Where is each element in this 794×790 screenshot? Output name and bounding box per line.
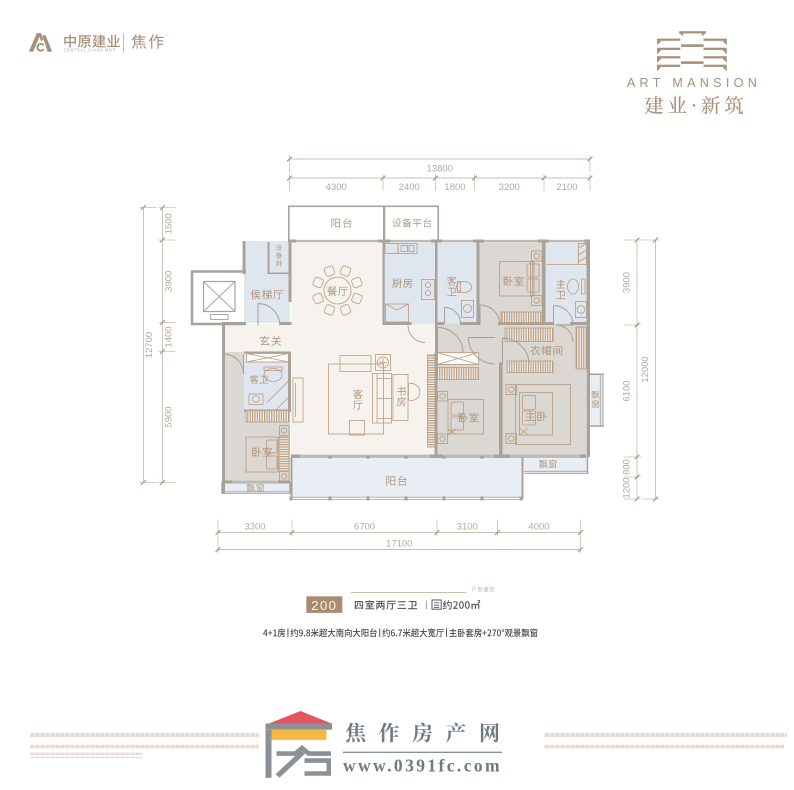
svg-text:1800: 1800 xyxy=(444,182,465,193)
svg-text:17100: 17100 xyxy=(386,539,412,550)
svg-text:12000: 12000 xyxy=(640,356,651,382)
svg-text:1200: 1200 xyxy=(622,477,633,498)
svg-text:1400: 1400 xyxy=(164,326,175,347)
svg-text:5900: 5900 xyxy=(164,406,175,427)
svg-text:12700: 12700 xyxy=(144,332,155,358)
svg-text:200: 200 xyxy=(311,598,337,613)
svg-text:6100: 6100 xyxy=(622,380,633,401)
svg-text:ART MANSION: ART MANSION xyxy=(627,76,761,90)
svg-text:www.0391fc.com: www.0391fc.com xyxy=(343,756,502,776)
svg-text:3200: 3200 xyxy=(499,182,520,193)
svg-text:4000: 4000 xyxy=(528,522,549,533)
svg-text:2100: 2100 xyxy=(556,182,577,193)
svg-text:6700: 6700 xyxy=(354,522,375,533)
svg-text:3900: 3900 xyxy=(622,272,633,293)
svg-text:CENTRAL CHINA MGT: CENTRAL CHINA MGT xyxy=(64,48,116,53)
svg-text:3100: 3100 xyxy=(457,522,478,533)
svg-text:1500: 1500 xyxy=(164,213,175,234)
svg-text:2400: 2400 xyxy=(399,182,420,193)
svg-text:4300: 4300 xyxy=(326,182,347,193)
svg-text:3300: 3300 xyxy=(244,522,265,533)
svg-text:13800: 13800 xyxy=(427,164,453,175)
svg-text:3900: 3900 xyxy=(164,271,175,292)
svg-text:800: 800 xyxy=(622,459,633,475)
